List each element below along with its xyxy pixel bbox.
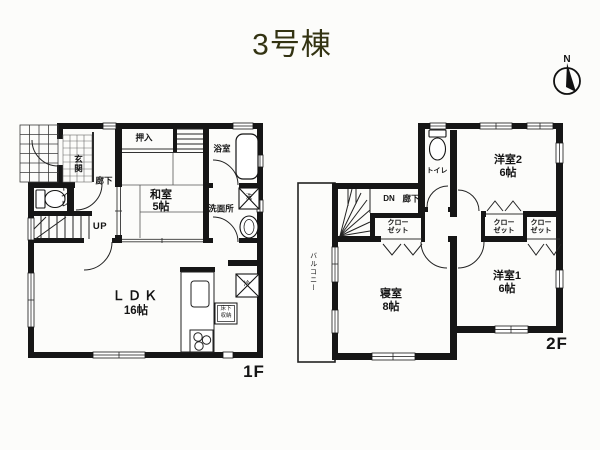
porch-tiles bbox=[20, 125, 58, 182]
label-washroom-1f: 洗面所 bbox=[208, 205, 234, 214]
washitsu-ldk-fusuma bbox=[122, 238, 203, 243]
floor-plan-page: 3号棟 N 玄関 廊下 押入 和室 5帖 浴室 洗面所 トイレ UP ＬＤＫ 1… bbox=[0, 0, 600, 450]
label-washitsu-name: 和室 bbox=[150, 190, 172, 202]
label-hallway-2f: 廊下 bbox=[402, 195, 419, 204]
label-toilet-2f: トイレ bbox=[427, 167, 448, 174]
label-closet2-line2: ゼット bbox=[494, 227, 515, 234]
label-underfloor-storage-1: 床下 bbox=[220, 307, 231, 313]
label-washitsu-size: 5帖 bbox=[152, 202, 169, 214]
label-stairs-up: UP bbox=[93, 222, 107, 232]
label-youshitsu2-size: 6帖 bbox=[499, 168, 516, 180]
label-fridge-mark: 冷 bbox=[244, 282, 251, 289]
label-bedroom-size: 8帖 bbox=[382, 302, 399, 314]
label-washer-mark: 洗 bbox=[246, 195, 253, 202]
label-ldk-size: 16帖 bbox=[124, 305, 148, 317]
floor2-tag: 2F bbox=[546, 335, 568, 353]
label-bathroom-1f: 浴室 bbox=[213, 145, 230, 154]
stairs-down bbox=[340, 189, 370, 236]
page-title: 3号棟 bbox=[252, 29, 332, 61]
bathtub-icon bbox=[236, 134, 258, 179]
label-bedroom-name: 寝室 bbox=[380, 289, 402, 301]
floor1-plan bbox=[20, 123, 263, 358]
label-ldk-name: ＬＤＫ bbox=[112, 289, 160, 303]
oshiire-fusuma-line bbox=[122, 149, 203, 153]
compass-north-label: N bbox=[563, 55, 570, 66]
stairs-upper-flight bbox=[177, 129, 203, 149]
label-entrance-1f: 玄関 bbox=[74, 155, 83, 174]
label-hallway-1f: 廊下 bbox=[95, 177, 112, 186]
label-youshitsu1-name: 洋室1 bbox=[493, 271, 521, 283]
label-underfloor-storage-2: 収納 bbox=[220, 314, 231, 320]
toilet-icon-2f bbox=[429, 130, 446, 160]
label-youshitsu1-size: 6帖 bbox=[498, 284, 515, 296]
stairs-up bbox=[34, 216, 89, 240]
walls-2f bbox=[332, 123, 563, 360]
label-closet3-line1: クロー bbox=[531, 219, 552, 226]
label-toilet-1f: トイレ bbox=[60, 184, 67, 208]
label-closet3-line2: ゼット bbox=[531, 227, 552, 234]
label-balcony: バルコニー bbox=[309, 252, 316, 292]
washbasin-icon bbox=[240, 216, 258, 238]
floor2-plan bbox=[298, 123, 563, 362]
washitsu-side-fusuma bbox=[115, 187, 122, 235]
kitchen-sink-icon bbox=[191, 281, 209, 307]
compass-icon bbox=[554, 63, 580, 94]
genkan-step-line bbox=[92, 132, 94, 182]
label-stairs-down: DN bbox=[383, 195, 395, 203]
label-closet1-line2: ゼット bbox=[388, 227, 409, 234]
label-oshiire-1f: 押入 bbox=[135, 134, 152, 143]
label-youshitsu2-name: 洋室2 bbox=[494, 155, 522, 167]
label-closet2-line1: クロー bbox=[494, 219, 515, 226]
floor1-tag: 1F bbox=[243, 363, 265, 381]
label-closet1-line1: クロー bbox=[388, 219, 409, 226]
kitchen-counter bbox=[181, 272, 214, 352]
